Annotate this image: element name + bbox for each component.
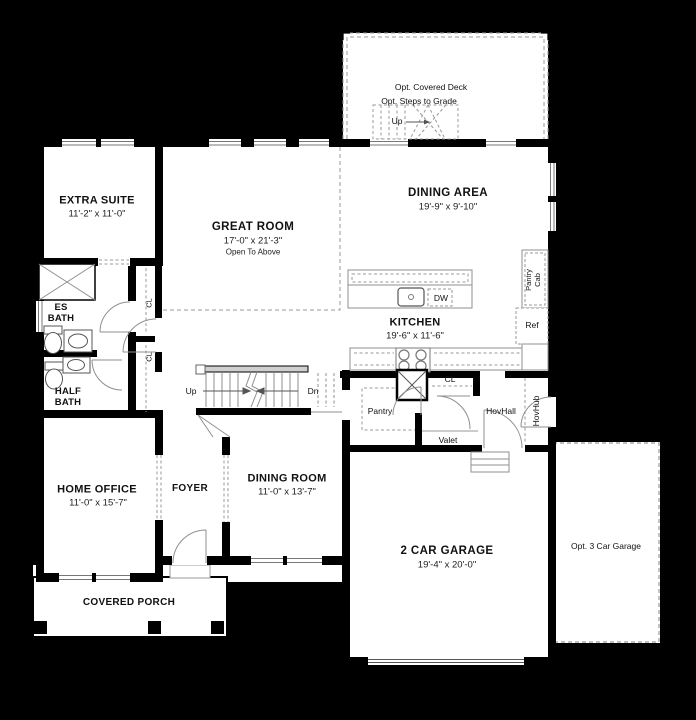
half-bath-sink	[63, 357, 90, 373]
shower	[39, 264, 95, 300]
island-sink	[398, 288, 424, 306]
front-stoop	[170, 565, 210, 578]
half-bath-toilet	[45, 362, 63, 389]
opt-garage-floor	[552, 442, 660, 643]
garage-door	[368, 657, 524, 665]
es-bath-sink	[64, 330, 92, 352]
floor-plan: EXTRA SUITE 11'-2" x 11'-0" GREAT ROOM 1…	[0, 0, 696, 720]
kitchen-counter	[350, 348, 548, 372]
refrigerator-outline	[516, 308, 548, 344]
right-counter	[522, 344, 548, 370]
floorplan-graphics	[0, 0, 696, 720]
kitchen-island	[348, 270, 472, 308]
garage-floor	[343, 452, 555, 665]
es-bath-toilet	[44, 326, 62, 354]
pantry-cab-box	[522, 250, 548, 308]
garage-steps	[471, 452, 509, 472]
deck-floor	[343, 33, 548, 139]
